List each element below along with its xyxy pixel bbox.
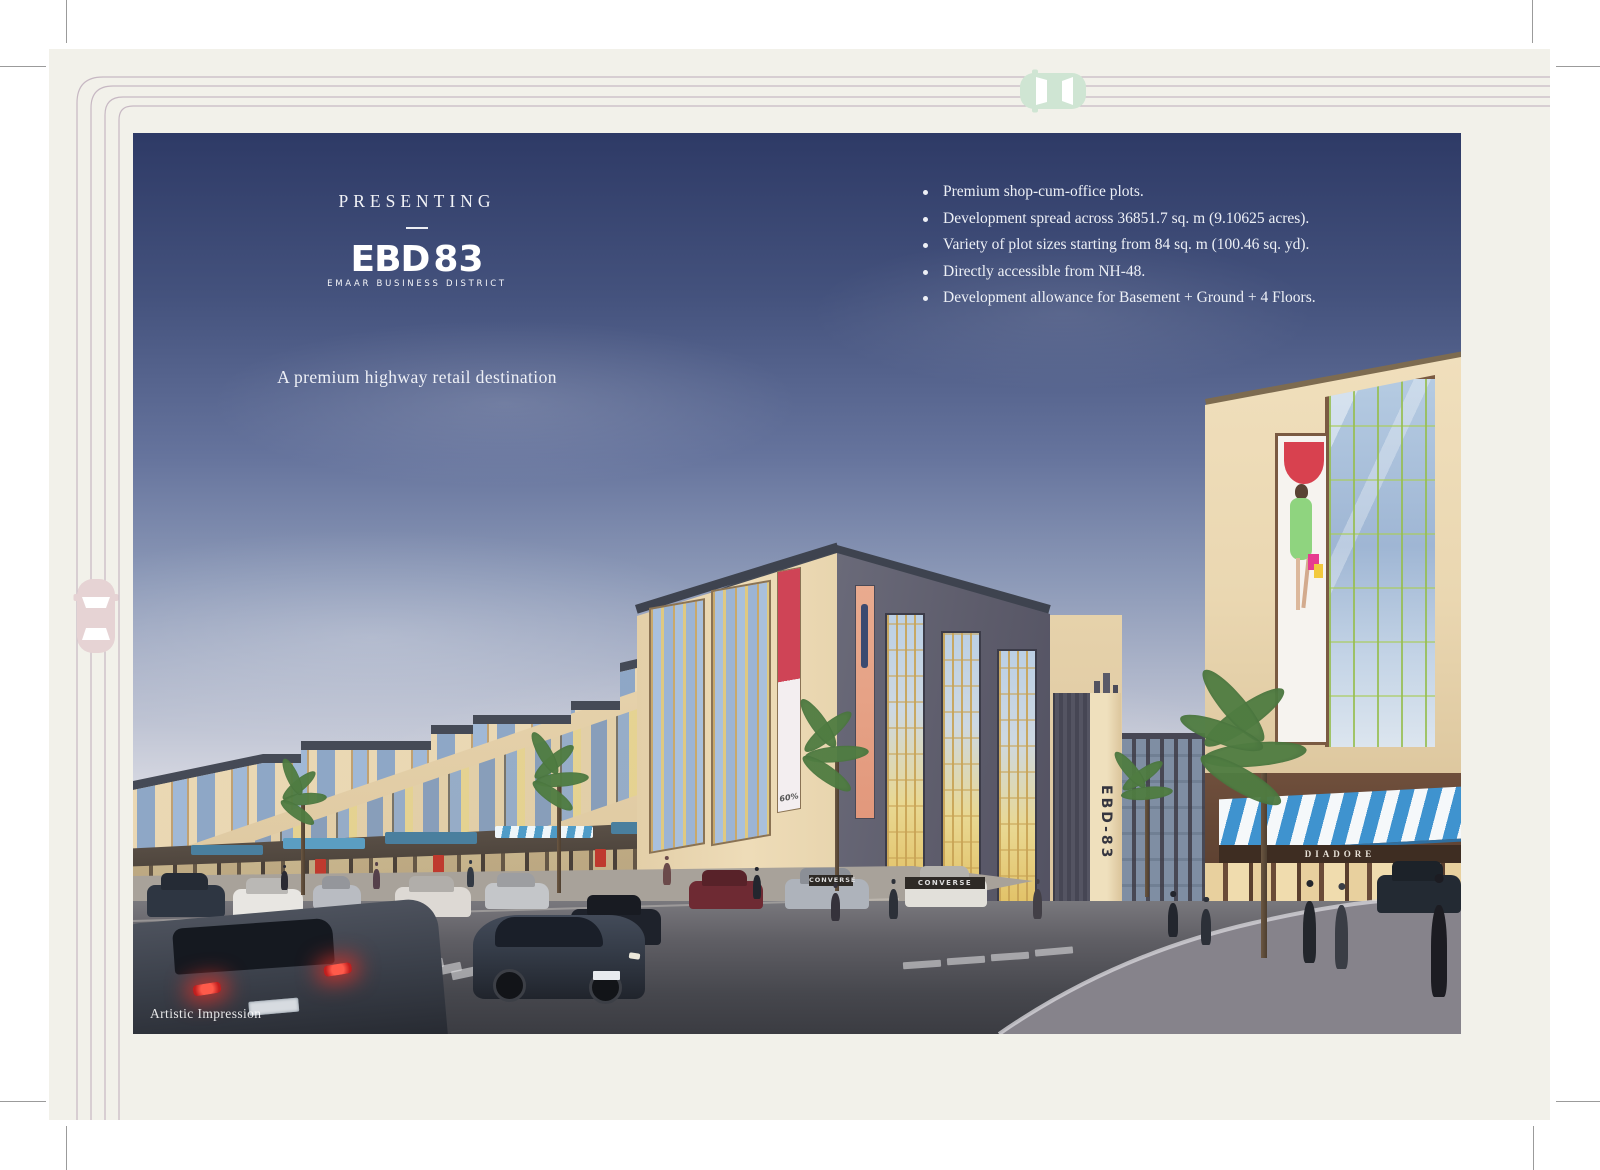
- parked-suv: [1377, 875, 1461, 913]
- crop-mark: [1533, 1126, 1534, 1170]
- divider-line: [406, 227, 428, 229]
- pedestrian: [1431, 905, 1447, 997]
- brochure-page: 60% EBD-83 DIADORE: [0, 0, 1600, 1170]
- pedestrian: [1033, 889, 1042, 919]
- logo-subtitle: EMAAR BUSINESS DISTRICT: [289, 279, 545, 289]
- pedestrian: [1201, 909, 1211, 945]
- crop-mark: [1556, 66, 1600, 67]
- pedestrian: [373, 869, 380, 889]
- bullet-item: Development spread across 36851.7 sq. m …: [921, 206, 1361, 233]
- crop-mark: [66, 1126, 67, 1170]
- feature-bullets: Premium shop-cum-office plots. Developme…: [921, 179, 1361, 312]
- pedestrian: [281, 871, 288, 890]
- pedestrian: [831, 893, 840, 921]
- tagline: A premium highway retail destination: [244, 367, 590, 388]
- logo-83: 83: [433, 239, 483, 280]
- store-sign: CONVERSE: [905, 877, 985, 889]
- bullet-item: Directly accessible from NH-48.: [921, 259, 1361, 286]
- pedestrian: [467, 867, 474, 887]
- pedestrian: [1303, 901, 1316, 963]
- parked-car: [485, 883, 549, 909]
- bullet-item: Development allowance for Basement + Gro…: [921, 285, 1361, 312]
- pedestrian: [1168, 903, 1178, 937]
- pedestrian: [753, 875, 761, 899]
- hero-text-block: PRESENTING EBD83 EMAAR BUSINESS DISTRICT…: [289, 191, 545, 289]
- crop-mark: [1556, 1101, 1600, 1102]
- store-sign: CONVERSE: [809, 875, 853, 886]
- pedestrian: [1335, 905, 1348, 969]
- parked-car: [147, 885, 225, 917]
- presenting-label: PRESENTING: [289, 191, 545, 212]
- parked-car: [689, 881, 763, 909]
- pedestrian: [663, 863, 671, 885]
- crop-mark: [1532, 0, 1533, 43]
- logo-ebd: EBD: [350, 239, 429, 280]
- bullet-item: Variety of plot sizes starting from 84 s…: [921, 232, 1361, 259]
- ebd83-logo: EBD83: [289, 245, 545, 275]
- bullet-item: Premium shop-cum-office plots.: [921, 179, 1361, 206]
- crop-mark: [66, 0, 67, 43]
- crop-mark: [0, 66, 46, 67]
- driving-sedan: [473, 915, 645, 999]
- crop-mark: [0, 1101, 46, 1102]
- hero-render: 60% EBD-83 DIADORE: [133, 133, 1461, 1034]
- pedestrian: [889, 889, 898, 919]
- artistic-impression-caption: Artistic Impression: [150, 1006, 261, 1022]
